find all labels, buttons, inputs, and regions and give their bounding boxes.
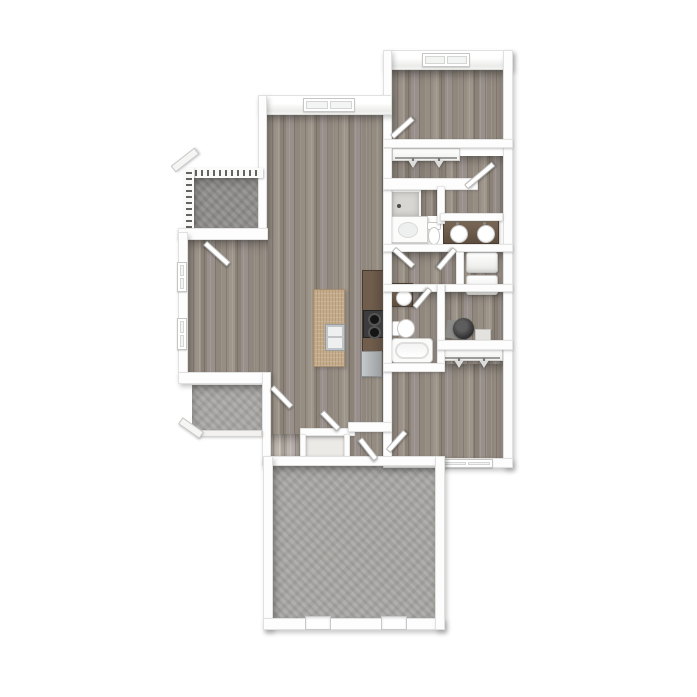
- hanger-icon: [479, 360, 489, 368]
- patio-left-wall: [263, 456, 273, 630]
- balcony-railing-left: [184, 168, 194, 230]
- patio-opening-left: [305, 616, 331, 630]
- master-toilet: [426, 222, 440, 243]
- burner-icon: [370, 315, 379, 324]
- balcony-railing-top: [193, 168, 263, 178]
- hanging-rod: [443, 357, 500, 359]
- island-sink: [325, 324, 345, 351]
- hanging-rod: [395, 157, 457, 159]
- dining-bottom-wall: [178, 372, 270, 384]
- bathroom2-tub: [391, 338, 433, 363]
- entry-closet-a-floor: [268, 434, 299, 456]
- sink-basin: [398, 222, 418, 238]
- washer: [466, 252, 498, 273]
- living-window: [303, 98, 355, 112]
- bedroom1-floor: [392, 70, 503, 140]
- closet-b-right-jamb: [344, 434, 350, 458]
- water-heater: [446, 316, 474, 342]
- master-shower: [390, 190, 421, 218]
- master-double-vanity: [443, 220, 499, 244]
- patio-bottom-wall: [263, 618, 445, 630]
- center-east-wall: [383, 148, 392, 460]
- entry-left-wall: [262, 372, 271, 466]
- bedroom1-bottom-wall: [383, 139, 513, 148]
- master-bath-left-floor: [420, 186, 438, 216]
- dining-window-upper: [177, 262, 187, 292]
- master-vanity: [391, 216, 428, 243]
- sink-basin: [450, 225, 468, 243]
- patio-floor: [273, 466, 435, 618]
- bedroom1-window: [422, 53, 470, 67]
- patio-opening-right: [381, 616, 407, 630]
- drain-icon: [397, 204, 401, 208]
- porch-curb: [196, 430, 262, 437]
- balcony-floor: [194, 178, 263, 228]
- patio-right-wall: [435, 456, 445, 630]
- double-vanity-back-wall: [440, 213, 503, 221]
- refrigerator: [361, 351, 382, 377]
- bedroom2-window: [441, 459, 493, 468]
- sink-basin: [396, 290, 412, 306]
- bath2-utility-divider-wall: [437, 284, 445, 364]
- bathroom2-bottom-wall: [383, 363, 445, 372]
- bedroom2-floor: [392, 364, 503, 458]
- master-closet-rod: [392, 148, 460, 161]
- bedroom2-door-jog-wall: [348, 422, 392, 432]
- laundry-bottom-wall: [445, 284, 513, 292]
- hanger-icon: [434, 160, 444, 168]
- dining-top-wall: [178, 228, 268, 240]
- entry-porch-floor: [192, 385, 262, 432]
- sink-basin: [477, 225, 495, 243]
- hanger-icon: [408, 160, 418, 168]
- water-heater-tank: [453, 318, 474, 340]
- right-exterior-wall: [503, 50, 513, 468]
- floor-plan: [0, 0, 697, 697]
- burner-icon: [370, 328, 379, 337]
- closet-b-left-jamb: [300, 434, 306, 458]
- kitchen-island: [313, 289, 345, 367]
- entry-closet-b-floor: [306, 436, 346, 456]
- bathroom2-toilet: [392, 318, 413, 337]
- dining-left-wall: [178, 232, 188, 378]
- hallway-bottom-wall: [383, 284, 445, 292]
- laundry-left-wall: [456, 252, 464, 285]
- hanger-icon: [454, 360, 464, 368]
- dining-window-lower: [177, 318, 187, 350]
- patio-top-wall: [263, 456, 445, 466]
- utility-bottom-wall: [437, 340, 513, 350]
- living-left-upper-wall: [258, 95, 267, 235]
